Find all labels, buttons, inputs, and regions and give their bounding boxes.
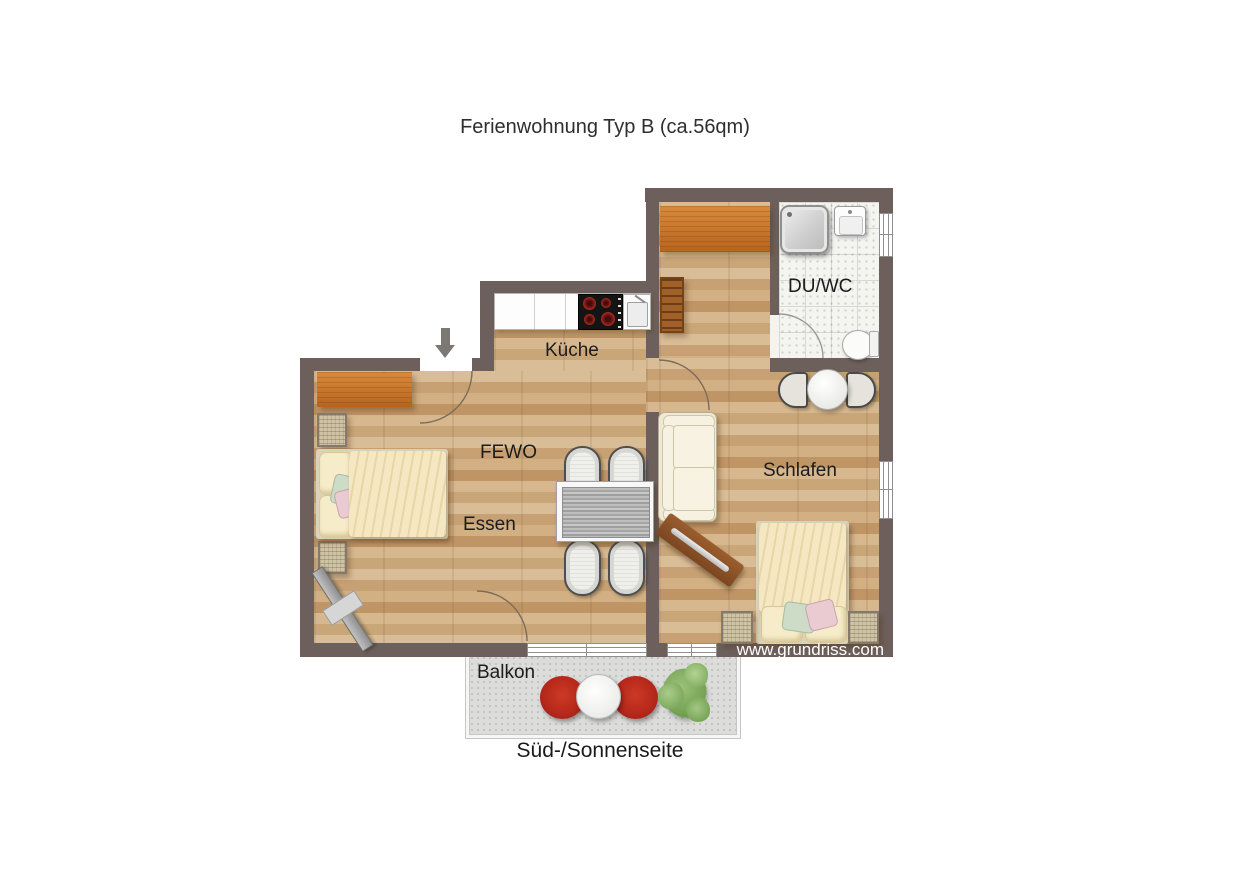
chair-seat bbox=[570, 545, 595, 590]
shower-drain bbox=[787, 212, 792, 217]
entrance-arrow-icon bbox=[435, 328, 455, 358]
dining-table bbox=[556, 481, 654, 542]
living-wardrobe bbox=[317, 372, 412, 407]
burner bbox=[601, 312, 615, 326]
bed-duvet bbox=[349, 451, 446, 537]
kitchen-sink bbox=[623, 294, 651, 330]
counter-division bbox=[565, 294, 566, 329]
sink-basin bbox=[839, 216, 863, 235]
folding-lounger bbox=[315, 566, 369, 650]
wall-bath-divider bbox=[770, 202, 779, 315]
living-double-bed bbox=[316, 449, 448, 539]
room-label-living: FEWO bbox=[480, 442, 537, 464]
wall-right bbox=[879, 202, 893, 657]
room-label-bedroom: Schlafen bbox=[763, 460, 837, 482]
hallway-wardrobe bbox=[660, 206, 770, 252]
entrance-door-opening bbox=[420, 358, 472, 371]
sink-basin bbox=[627, 302, 648, 327]
watermark: www.grundriss.com bbox=[650, 640, 884, 660]
plant-leaves bbox=[686, 697, 710, 722]
wall-left bbox=[300, 371, 314, 657]
burner bbox=[601, 298, 611, 308]
sofa-cushion bbox=[673, 425, 715, 469]
cooktop bbox=[578, 294, 623, 330]
bedroom-round-table bbox=[807, 369, 848, 410]
room-label-dining: Essen bbox=[463, 514, 516, 536]
burner bbox=[584, 314, 595, 325]
plant-leaves bbox=[684, 663, 708, 687]
page-title: Ferienwohnung Typ B (ca.56qm) bbox=[300, 116, 910, 139]
wall-divider-upper bbox=[646, 202, 659, 358]
window-living-bottom bbox=[527, 643, 647, 657]
room-label-kitchen: Küche bbox=[545, 340, 599, 362]
bedroom-side-chair bbox=[778, 372, 808, 408]
counter-division bbox=[534, 294, 535, 329]
dining-chair bbox=[564, 539, 601, 596]
dining-table-top bbox=[562, 487, 650, 538]
bedroom-double-bed bbox=[756, 521, 849, 644]
bathroom-door-opening bbox=[770, 315, 779, 358]
bed-duvet bbox=[759, 523, 846, 612]
entrance-arrow-head bbox=[435, 345, 455, 358]
room-label-balcony: Balkon bbox=[477, 662, 535, 684]
floorplan-page: Ferienwohnung Typ B (ca.56qm) bbox=[0, 0, 1250, 881]
cooktop-controls bbox=[618, 298, 621, 328]
coat-rack bbox=[660, 277, 684, 333]
sofa-cushion bbox=[673, 467, 715, 511]
window-bathroom-right bbox=[879, 213, 893, 257]
room-label-bath: DU/WC bbox=[788, 276, 852, 298]
sofa bbox=[658, 412, 717, 522]
toilet-tank bbox=[869, 331, 879, 357]
nightstand bbox=[317, 413, 347, 447]
dining-chair bbox=[608, 539, 645, 596]
burner bbox=[583, 297, 596, 310]
balcony-plant bbox=[658, 663, 712, 725]
window-bedroom-right bbox=[879, 461, 893, 519]
chair-seat bbox=[614, 545, 639, 590]
balcony-table bbox=[576, 674, 621, 719]
bathroom-sink bbox=[834, 206, 866, 236]
wall-top-right bbox=[645, 188, 893, 202]
shower bbox=[780, 205, 829, 254]
sink-faucet-dot bbox=[848, 210, 852, 214]
south-side-label: Süd-/Sonnenseite bbox=[300, 739, 900, 763]
plant-leaves bbox=[658, 683, 684, 709]
floor-door-gap-living-bedroom bbox=[646, 358, 659, 412]
entrance-arrow-shaft bbox=[441, 328, 450, 346]
